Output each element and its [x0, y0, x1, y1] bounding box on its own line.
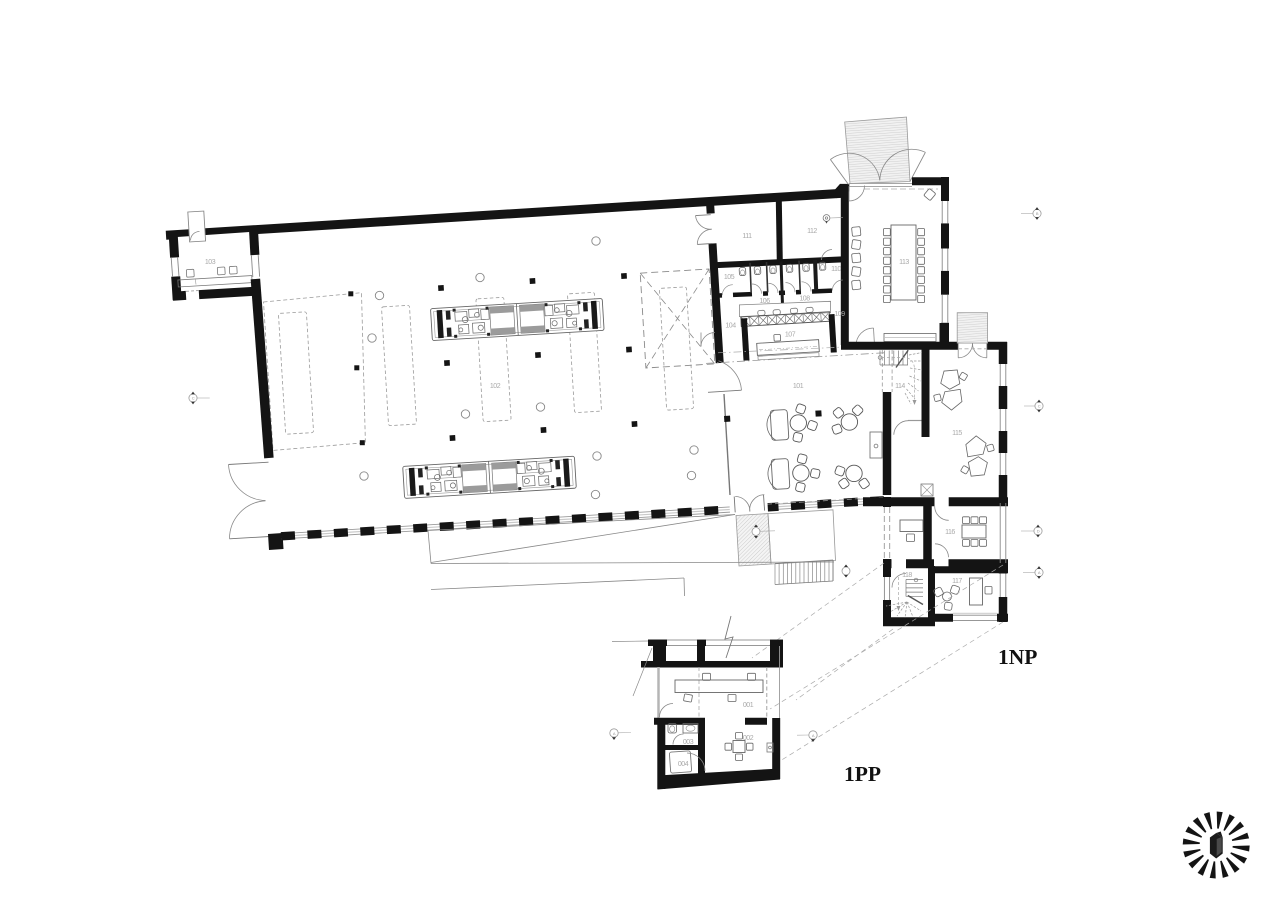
svg-text:114: 114	[895, 383, 905, 390]
svg-text:105: 105	[724, 274, 735, 281]
svg-text:104: 104	[725, 323, 736, 330]
svg-text:1PP: 1PP	[844, 762, 881, 786]
svg-text:002: 002	[743, 735, 754, 742]
svg-text:003: 003	[683, 739, 694, 746]
svg-text:115: 115	[952, 430, 962, 437]
svg-text:110: 110	[831, 266, 841, 273]
svg-text:001: 001	[743, 702, 754, 709]
svg-text:109: 109	[834, 311, 845, 318]
svg-text:102: 102	[490, 383, 501, 390]
svg-text:111: 111	[742, 233, 752, 240]
svg-text:118: 118	[902, 572, 912, 579]
svg-text:108: 108	[799, 296, 810, 303]
svg-text:113: 113	[899, 259, 909, 266]
svg-text:116: 116	[945, 529, 955, 536]
svg-text:1NP: 1NP	[998, 645, 1037, 669]
svg-text:101: 101	[793, 383, 804, 390]
svg-text:004: 004	[678, 761, 689, 768]
svg-text:117: 117	[952, 578, 962, 585]
svg-text:112: 112	[807, 228, 817, 235]
svg-text:107: 107	[785, 332, 796, 339]
svg-text:103: 103	[205, 259, 216, 266]
